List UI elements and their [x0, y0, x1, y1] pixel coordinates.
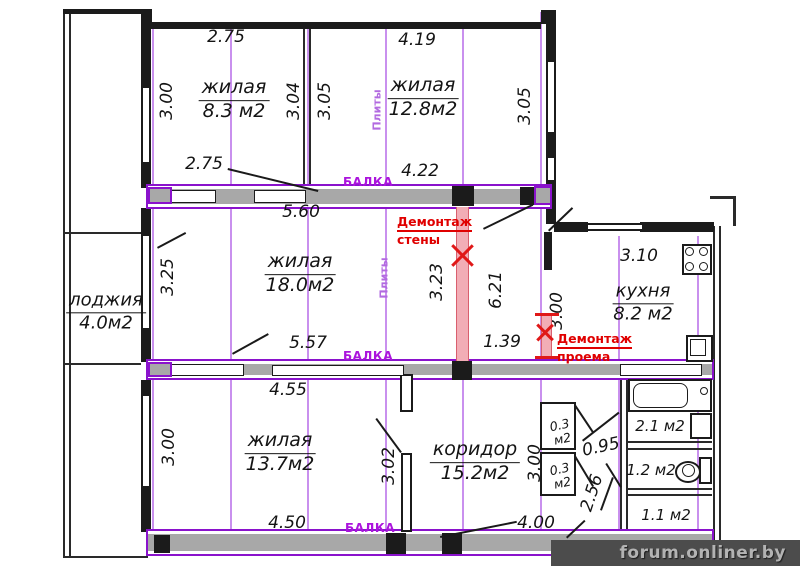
exterior-edge-line — [69, 9, 71, 558]
room-label-wc: 1.2 м2 — [626, 461, 675, 479]
exterior-edge-line — [63, 556, 148, 558]
beam-opening — [620, 364, 702, 376]
bath-wall-line — [628, 494, 712, 496]
room-label-living-180: жилая 18.0м2 — [265, 251, 336, 297]
room-label-storage: 1.1 м2 — [641, 506, 690, 524]
window — [588, 223, 642, 231]
bath-wall-line — [620, 380, 622, 530]
demolition-tick — [535, 313, 559, 316]
stove-burner-icon — [685, 247, 694, 256]
dim-height: 3.00 — [159, 428, 179, 466]
loggia-bottom-line — [63, 363, 141, 365]
stove-burner-icon — [685, 262, 694, 271]
dim-width: 2.75 — [207, 27, 245, 47]
wall-segment — [546, 132, 556, 158]
dim-height: 3.25 — [158, 258, 178, 296]
demolition-label-line: проема — [557, 349, 632, 365]
dim-width: 4.55 — [269, 380, 307, 400]
drain-icon — [700, 387, 708, 395]
room-label-bath: 2.1 м2 — [635, 417, 684, 435]
dim-height: 3.02 — [379, 447, 399, 485]
dim-width: 4.22 — [401, 161, 439, 181]
room-name: жилая — [265, 251, 336, 275]
watermark-bar: forum.onliner.by — [551, 540, 800, 566]
slab-label-top: Плиты — [371, 89, 384, 130]
dim-width: 4.00 — [517, 513, 555, 533]
room-area: 8.3 м2 — [199, 101, 270, 123]
room-area: 18.0м2 — [265, 275, 336, 297]
window — [141, 88, 151, 162]
window — [546, 158, 556, 180]
dim-height: 3.05 — [515, 87, 535, 125]
beam-label-top: БАЛКА — [343, 175, 393, 189]
wall-end-block — [452, 361, 472, 380]
stove-burner-icon — [699, 247, 708, 256]
leader-line — [232, 333, 269, 355]
dim-width: 3.10 — [620, 246, 658, 266]
dim-height: 3.05 — [315, 82, 335, 120]
beam-opening — [272, 365, 404, 376]
room-area: 4.0м2 — [66, 313, 146, 334]
room-area: 15.2м2 — [430, 463, 520, 485]
dim-height: 3.04 — [284, 82, 304, 120]
watermark-text: forum.onliner.by — [551, 540, 800, 566]
bath-wall-line — [628, 448, 712, 450]
wall-segment — [546, 14, 556, 62]
slab-label-middle: Плиты — [378, 257, 391, 298]
room-name: жилая — [388, 75, 459, 99]
dim-height: 3.23 — [427, 263, 447, 301]
dim-height: 3.00 — [157, 82, 177, 120]
toilet-bowl-inner — [682, 464, 695, 477]
room-label-corridor: коридор 15.2м2 — [430, 439, 520, 485]
room-area: 8.2 м2 — [613, 304, 674, 325]
kitchen-sink-bowl — [690, 339, 706, 356]
wall-segment — [544, 232, 552, 270]
wall-segment — [554, 222, 588, 232]
bath-wall-line — [628, 488, 712, 490]
room-name: жилая — [245, 430, 316, 454]
stairwell-wall-line — [713, 226, 715, 540]
dim-width: 4.50 — [268, 513, 306, 533]
dim-height: 3.00 — [525, 444, 545, 482]
sink-cabinet-icon — [690, 413, 712, 439]
demolition-label-line: Демонтаж — [397, 214, 472, 232]
wall-end-block — [520, 187, 534, 205]
room-area: 13.7м2 — [245, 454, 316, 476]
partition-wall — [401, 453, 412, 532]
wall-end-block — [452, 186, 474, 206]
wall-segment — [733, 196, 736, 226]
room-name: коридор — [430, 439, 520, 463]
beam-end-block — [534, 186, 552, 205]
wall-segment — [141, 380, 151, 396]
panel-seam-line — [152, 25, 154, 556]
demolition-label-line: стены — [397, 232, 472, 248]
window — [546, 62, 556, 132]
bath-wall-line — [628, 441, 712, 443]
loggia-top-line — [63, 232, 141, 234]
room-name: кухня — [613, 281, 674, 304]
demolition-x-icon — [535, 321, 555, 341]
dim-width: 5.60 — [282, 202, 320, 222]
closet-door-line — [574, 405, 593, 433]
beam-end-block — [148, 187, 172, 204]
beam-label-bottom: БАЛКА — [345, 521, 395, 535]
demolition-opening-label: Демонтаж проема — [557, 331, 632, 364]
dim-height: 6.21 — [486, 271, 506, 309]
wall-segment — [141, 22, 151, 88]
beam-opening — [168, 364, 244, 376]
room-label-loggia: лоджия 4.0м2 — [66, 290, 146, 333]
floor-plan: 2.75 4.19 3.00 3.04 3.05 3.05 2.75 4.22 … — [0, 0, 800, 566]
dim-width: 5.57 — [289, 333, 327, 353]
demolition-label-line: Демонтаж — [557, 331, 632, 349]
beam-label-middle: БАЛКА — [343, 349, 393, 363]
stove-burner-icon — [699, 262, 708, 271]
exterior-edge-line — [63, 9, 65, 558]
dim-width: 2.75 — [185, 154, 223, 174]
room-label-kitchen: кухня 8.2 м2 — [613, 281, 674, 324]
room-label-living-137: жилая 13.7м2 — [245, 430, 316, 476]
demolition-tick — [535, 356, 559, 359]
bathtub-inner — [633, 383, 688, 408]
beam-end-block — [148, 362, 172, 377]
top-wall — [141, 22, 541, 29]
partition-wall-line — [309, 29, 311, 185]
window — [141, 396, 151, 486]
wall-segment — [640, 222, 714, 232]
wall-segment — [141, 208, 151, 236]
dim-width: 4.19 — [398, 30, 436, 50]
wall-segment — [141, 486, 151, 532]
demolition-wall-label: Демонтаж стены — [397, 214, 472, 247]
wall-end-block — [154, 535, 170, 553]
room-label-living-128: жилая 12.8м2 — [388, 75, 459, 121]
room-label-living-83: жилая 8.3 м2 — [199, 77, 270, 123]
leader-line — [157, 232, 186, 249]
dim-width: 1.39 — [483, 332, 521, 352]
door-frame-block — [386, 533, 406, 554]
wall-segment — [63, 9, 152, 14]
room-area: 12.8м2 — [388, 99, 459, 121]
room-name: жилая — [199, 77, 270, 101]
stairwell-wall-line — [719, 226, 721, 540]
partition-stub — [400, 374, 413, 412]
room-name: лоджия — [66, 290, 146, 313]
